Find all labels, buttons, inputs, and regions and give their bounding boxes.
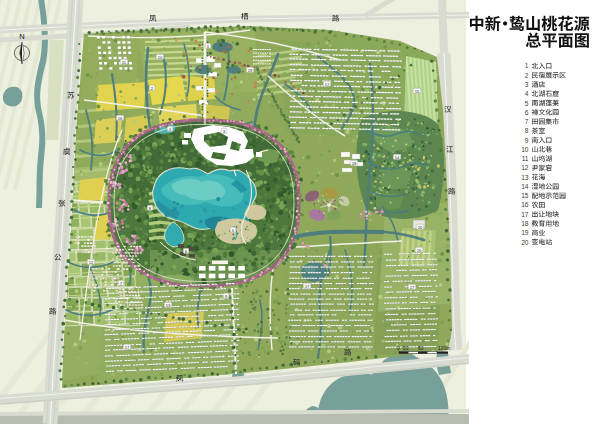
svg-text:17: 17 bbox=[325, 82, 330, 87]
svg-text:8: 8 bbox=[525, 127, 529, 134]
svg-text:10: 10 bbox=[521, 146, 529, 153]
svg-text:19: 19 bbox=[521, 229, 529, 236]
svg-text:17: 17 bbox=[125, 345, 130, 350]
svg-text:N: N bbox=[19, 32, 24, 41]
svg-text:120m: 120m bbox=[438, 345, 451, 351]
svg-text:12: 12 bbox=[89, 260, 94, 265]
svg-text:16: 16 bbox=[417, 248, 422, 253]
svg-text:6: 6 bbox=[525, 109, 529, 116]
svg-text:3: 3 bbox=[525, 81, 529, 88]
svg-text:14: 14 bbox=[521, 183, 529, 190]
svg-text:20: 20 bbox=[403, 345, 409, 351]
svg-text:20: 20 bbox=[418, 225, 423, 230]
svg-text:20: 20 bbox=[521, 239, 529, 246]
svg-text:18: 18 bbox=[352, 161, 357, 166]
svg-text:17: 17 bbox=[410, 285, 415, 290]
svg-text:15: 15 bbox=[521, 192, 529, 199]
svg-text:18: 18 bbox=[521, 220, 529, 227]
svg-text:13: 13 bbox=[521, 174, 529, 181]
svg-text:13: 13 bbox=[166, 303, 171, 308]
svg-text:14: 14 bbox=[395, 155, 400, 160]
svg-text:5: 5 bbox=[525, 100, 529, 107]
svg-text:16: 16 bbox=[521, 201, 529, 208]
svg-text:2: 2 bbox=[525, 72, 529, 79]
svg-text:0: 0 bbox=[397, 345, 400, 351]
svg-text:12: 12 bbox=[521, 164, 529, 171]
svg-text:11: 11 bbox=[522, 155, 529, 162]
svg-text:16: 16 bbox=[118, 116, 123, 121]
svg-text:4: 4 bbox=[525, 90, 529, 97]
svg-text:19: 19 bbox=[248, 68, 253, 73]
svg-text:60: 60 bbox=[418, 345, 424, 351]
svg-text:10: 10 bbox=[158, 55, 163, 60]
svg-text:7: 7 bbox=[525, 118, 529, 125]
svg-text:9: 9 bbox=[525, 137, 529, 144]
svg-text:11: 11 bbox=[122, 60, 127, 65]
svg-text:15: 15 bbox=[415, 89, 420, 94]
svg-text:17: 17 bbox=[305, 284, 310, 289]
svg-text:17: 17 bbox=[521, 211, 529, 218]
svg-text:1: 1 bbox=[525, 62, 529, 69]
